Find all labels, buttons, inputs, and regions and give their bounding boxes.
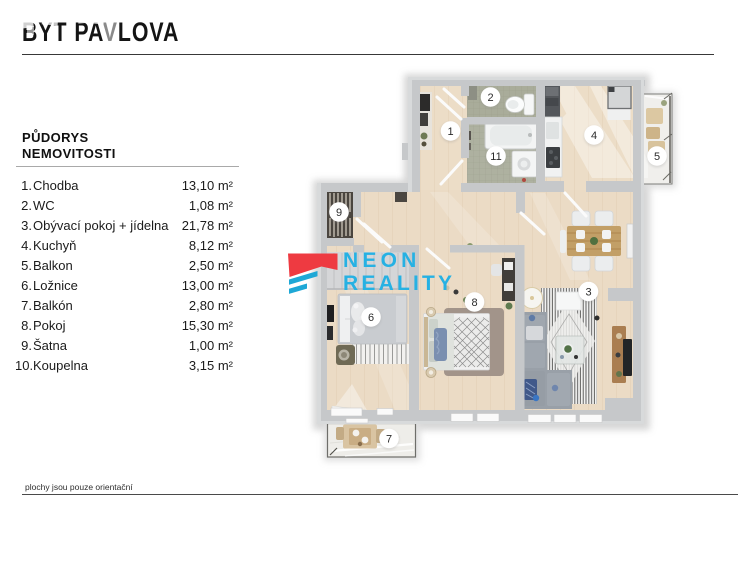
svg-text:9: 9 bbox=[336, 207, 342, 219]
svg-text:6: 6 bbox=[368, 312, 374, 324]
svg-text:7: 7 bbox=[386, 434, 392, 446]
svg-text:5: 5 bbox=[654, 151, 660, 163]
svg-text:1: 1 bbox=[447, 126, 453, 138]
svg-text:11: 11 bbox=[490, 151, 501, 163]
svg-text:3: 3 bbox=[585, 287, 591, 299]
svg-text:8: 8 bbox=[471, 297, 477, 309]
svg-text:2: 2 bbox=[487, 92, 493, 104]
svg-text:4: 4 bbox=[591, 130, 597, 142]
